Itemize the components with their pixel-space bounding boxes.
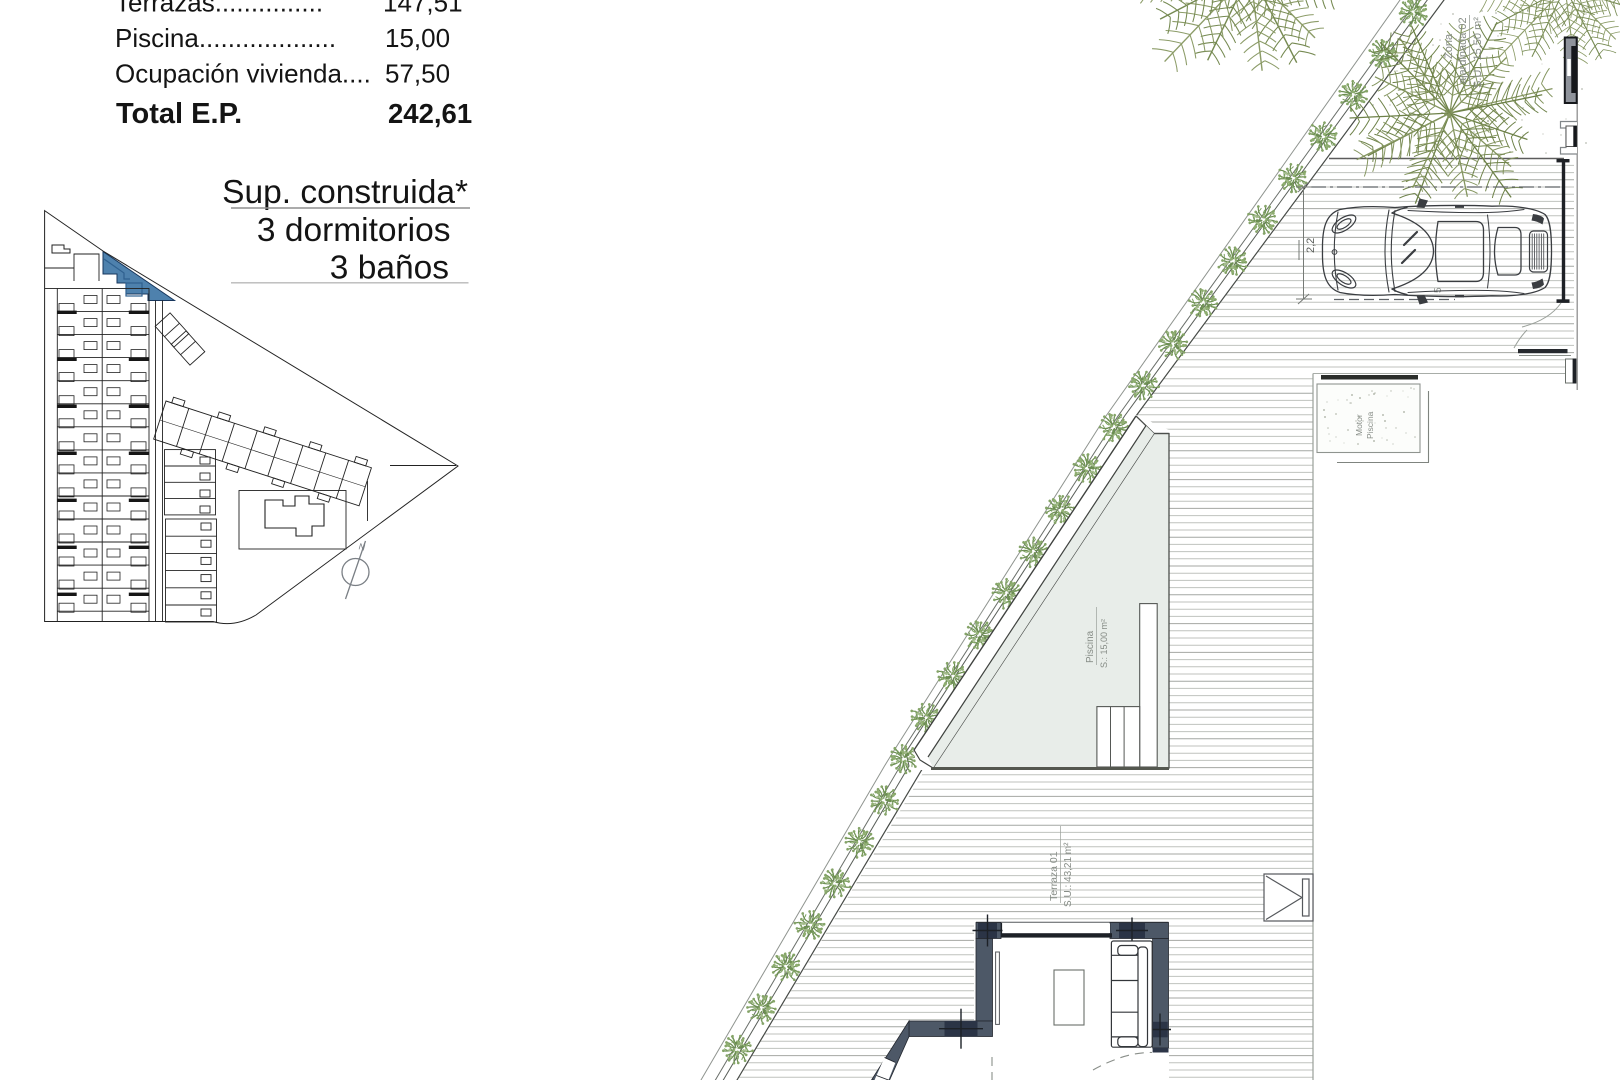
svg-text:57,50: 57,50 xyxy=(385,59,450,89)
svg-text:Piscina: Piscina xyxy=(1085,630,1096,663)
svg-text:S.U.: 43,21 m²: S.U.: 43,21 m² xyxy=(1063,842,1074,907)
svg-text:3 dormitorios: 3 dormitorios xyxy=(257,212,451,249)
svg-text:Ocupación vivienda....: Ocupación vivienda.... xyxy=(115,59,371,89)
svg-text:N: N xyxy=(357,541,366,552)
svg-text:Zona: Zona xyxy=(1443,33,1455,59)
svg-text:242,61: 242,61 xyxy=(388,98,472,129)
svg-text:S.U.: 15,50 m²: S.U.: 15,50 m² xyxy=(1472,17,1484,88)
svg-text:147,51: 147,51 xyxy=(383,0,463,18)
svg-text:Sup. construida*: Sup. construida* xyxy=(222,174,468,211)
svg-text:15,00: 15,00 xyxy=(385,23,450,53)
svg-text:Piscina...................: Piscina................... xyxy=(115,23,336,53)
svg-text:2,2: 2,2 xyxy=(1305,238,1317,253)
svg-text:3 baños: 3 baños xyxy=(330,250,449,287)
svg-text:5: 5 xyxy=(1433,287,1444,293)
svg-text:Piscina: Piscina xyxy=(1365,411,1375,439)
svg-text:Terrazas...............: Terrazas............... xyxy=(115,0,323,18)
svg-text:S.: 15,00 m²: S.: 15,00 m² xyxy=(1099,619,1109,668)
svg-text:ajardinada 02: ajardinada 02 xyxy=(1457,17,1469,84)
svg-text:Terraza 01: Terraza 01 xyxy=(1048,851,1060,901)
svg-text:Total E.P.: Total E.P. xyxy=(116,98,242,130)
svg-text:Motor: Motor xyxy=(1354,414,1364,436)
